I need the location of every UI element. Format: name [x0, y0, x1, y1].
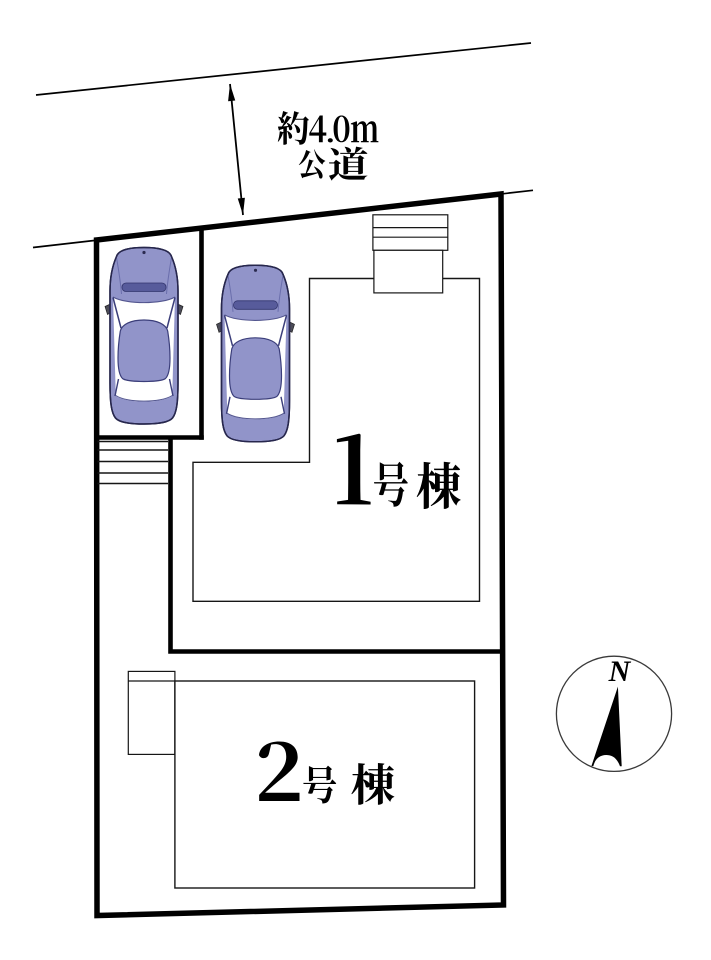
svg-text:N: N: [608, 655, 632, 688]
